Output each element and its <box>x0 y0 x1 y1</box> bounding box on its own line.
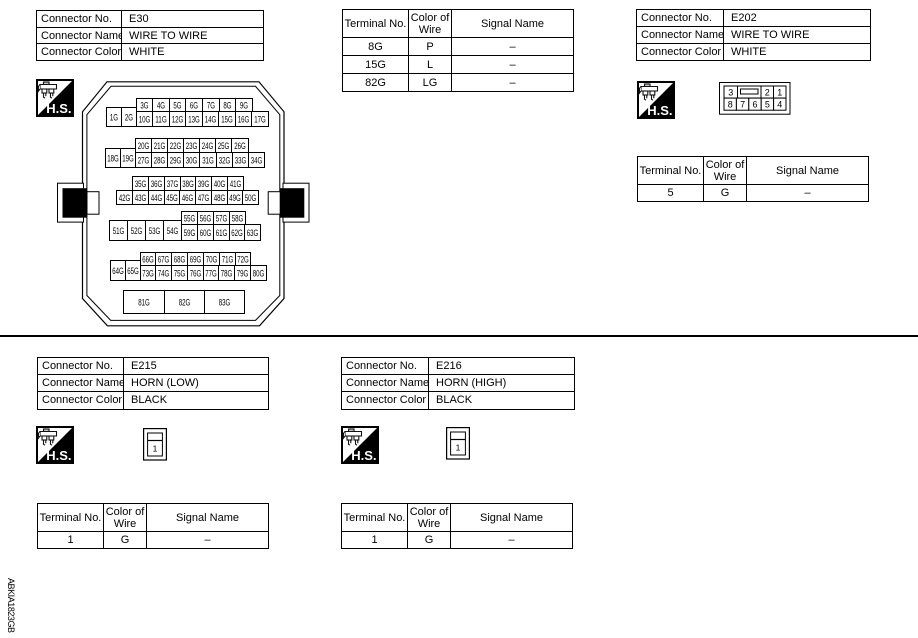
svg-text:70G: 70G <box>206 254 218 264</box>
svg-text:80G: 80G <box>253 268 265 278</box>
svg-text:46G: 46G <box>182 193 194 203</box>
svg-text:21G: 21G <box>154 141 166 151</box>
svg-text:1: 1 <box>777 87 782 97</box>
svg-text:2G: 2G <box>125 112 133 122</box>
svg-text:82G: 82G <box>179 297 191 307</box>
svg-text:57G: 57G <box>216 213 228 223</box>
svg-text:38G: 38G <box>182 179 194 189</box>
svg-text:37G: 37G <box>167 179 179 189</box>
svg-text:36G: 36G <box>151 179 163 189</box>
svg-text:27G: 27G <box>138 155 150 165</box>
svg-text:4: 4 <box>777 99 782 109</box>
svg-text:41G: 41G <box>230 179 242 189</box>
svg-text:29G: 29G <box>170 155 182 165</box>
svg-text:H.S.: H.S. <box>647 103 672 118</box>
svg-text:47G: 47G <box>198 193 210 203</box>
svg-text:3: 3 <box>728 87 733 97</box>
svg-text:12G: 12G <box>172 114 184 124</box>
svg-text:H.S.: H.S. <box>351 448 376 463</box>
svg-text:44G: 44G <box>151 193 163 203</box>
svg-text:11G: 11G <box>155 114 167 124</box>
svg-text:48G: 48G <box>214 193 226 203</box>
svg-text:52G: 52G <box>131 226 143 236</box>
svg-text:19G: 19G <box>122 153 134 163</box>
svg-text:25G: 25G <box>218 141 230 151</box>
svg-text:69G: 69G <box>190 254 202 264</box>
svg-text:17G: 17G <box>254 114 266 124</box>
svg-text:50G: 50G <box>245 193 257 203</box>
svg-text:32G: 32G <box>219 155 231 165</box>
svg-text:79G: 79G <box>237 268 249 278</box>
svg-text:9G: 9G <box>240 100 248 110</box>
svg-text:58G: 58G <box>232 213 244 223</box>
svg-text:3G: 3G <box>140 100 148 110</box>
svg-text:23G: 23G <box>186 141 198 151</box>
svg-text:28G: 28G <box>154 155 166 165</box>
svg-text:51G: 51G <box>113 226 125 236</box>
svg-text:42G: 42G <box>119 193 131 203</box>
svg-text:6G: 6G <box>190 100 198 110</box>
svg-text:72G: 72G <box>237 254 249 264</box>
svg-text:8G: 8G <box>223 100 231 110</box>
svg-text:43G: 43G <box>135 193 147 203</box>
svg-text:20G: 20G <box>138 141 150 151</box>
svg-text:34G: 34G <box>251 155 263 165</box>
svg-text:8: 8 <box>728 99 733 109</box>
svg-text:45G: 45G <box>166 193 178 203</box>
svg-text:30G: 30G <box>186 155 198 165</box>
svg-text:83G: 83G <box>219 297 231 307</box>
svg-text:31G: 31G <box>202 155 214 165</box>
svg-text:7G: 7G <box>207 100 215 110</box>
svg-text:56G: 56G <box>200 213 212 223</box>
svg-text:5G: 5G <box>173 100 181 110</box>
svg-text:54G: 54G <box>167 226 179 236</box>
svg-text:65G: 65G <box>127 266 139 276</box>
svg-text:10G: 10G <box>139 114 151 124</box>
svg-text:49G: 49G <box>229 193 241 203</box>
svg-text:60G: 60G <box>200 228 212 238</box>
svg-text:64G: 64G <box>112 266 124 276</box>
svg-text:75G: 75G <box>174 268 186 278</box>
svg-text:59G: 59G <box>184 228 196 238</box>
svg-text:26G: 26G <box>234 141 246 151</box>
svg-text:5: 5 <box>765 99 770 109</box>
svg-text:76G: 76G <box>190 268 202 278</box>
svg-text:66G: 66G <box>142 254 154 264</box>
svg-text:1G: 1G <box>110 112 118 122</box>
svg-text:16G: 16G <box>238 114 250 124</box>
svg-text:1: 1 <box>456 442 461 452</box>
svg-text:22G: 22G <box>170 141 182 151</box>
svg-text:2: 2 <box>765 87 770 97</box>
svg-text:6: 6 <box>752 99 757 109</box>
svg-text:33G: 33G <box>235 155 247 165</box>
svg-text:55G: 55G <box>184 213 196 223</box>
svg-text:18G: 18G <box>107 153 119 163</box>
svg-text:67G: 67G <box>158 254 170 264</box>
svg-text:7: 7 <box>740 99 745 109</box>
svg-text:74G: 74G <box>158 268 170 278</box>
svg-text:35G: 35G <box>135 179 147 189</box>
svg-text:61G: 61G <box>216 228 228 238</box>
svg-text:78G: 78G <box>221 268 233 278</box>
svg-text:62G: 62G <box>231 228 243 238</box>
svg-text:15G: 15G <box>221 114 233 124</box>
svg-text:14G: 14G <box>205 114 217 124</box>
svg-text:77G: 77G <box>205 268 217 278</box>
svg-text:71G: 71G <box>222 254 234 264</box>
svg-text:1: 1 <box>153 443 158 453</box>
svg-text:4G: 4G <box>157 100 165 110</box>
svg-text:81G: 81G <box>138 297 150 307</box>
svg-text:H.S.: H.S. <box>46 448 71 463</box>
svg-text:24G: 24G <box>202 141 214 151</box>
svg-text:13G: 13G <box>188 114 200 124</box>
svg-text:63G: 63G <box>247 228 259 238</box>
svg-text:40G: 40G <box>214 179 226 189</box>
svg-text:39G: 39G <box>198 179 210 189</box>
svg-text:73G: 73G <box>142 268 154 278</box>
svg-text:68G: 68G <box>174 254 186 264</box>
svg-text:53G: 53G <box>149 226 161 236</box>
